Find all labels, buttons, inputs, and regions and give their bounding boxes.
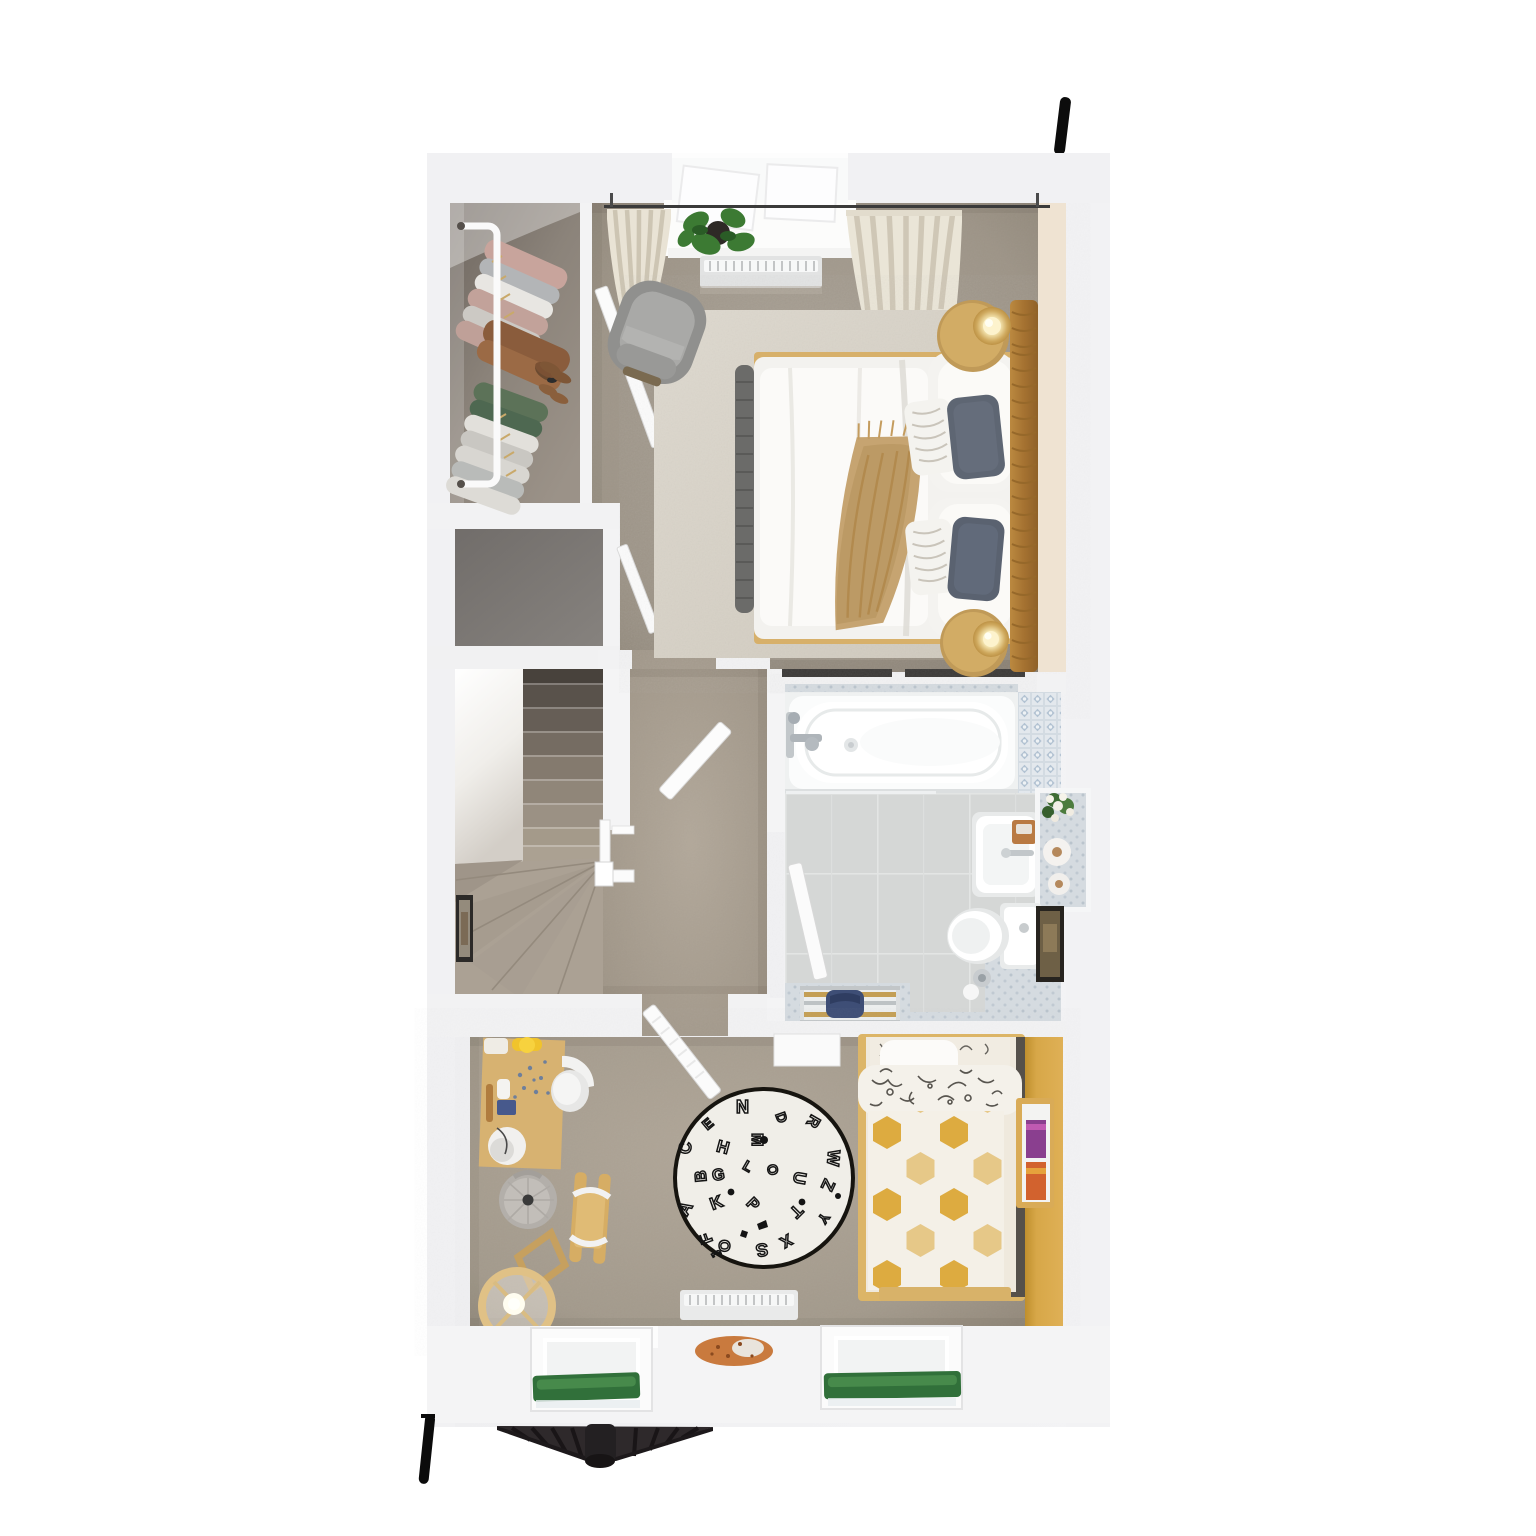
svg-text:W: W xyxy=(823,1149,843,1168)
svg-text:B: B xyxy=(693,1170,711,1183)
svg-text:N: N xyxy=(736,1097,749,1117)
